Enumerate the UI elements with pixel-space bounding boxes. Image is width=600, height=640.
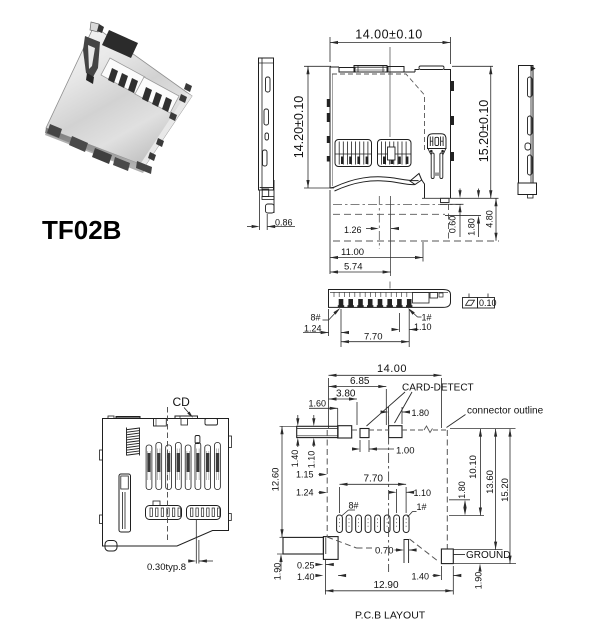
svg-text:TF02B: TF02B: [42, 215, 121, 245]
svg-text:1.10: 1.10: [306, 451, 316, 469]
svg-text:7.70: 7.70: [364, 474, 384, 485]
svg-text:1.00: 1.00: [396, 446, 415, 457]
svg-text:1.10: 1.10: [414, 322, 432, 332]
svg-text:6.85: 6.85: [350, 376, 370, 387]
svg-text:14.20±0.10: 14.20±0.10: [292, 96, 306, 159]
svg-text:0.25: 0.25: [297, 561, 315, 571]
svg-text:3.80: 3.80: [336, 389, 356, 400]
svg-text:14.00: 14.00: [377, 363, 407, 375]
svg-text:10.10: 10.10: [468, 455, 479, 479]
svg-text:8#: 8#: [311, 313, 321, 323]
svg-text:1#: 1#: [417, 502, 427, 512]
svg-text:1.15: 1.15: [296, 470, 314, 480]
svg-text:GROUND: GROUND: [466, 550, 510, 561]
svg-text:1.10: 1.10: [414, 488, 432, 498]
svg-text:8#: 8#: [349, 501, 359, 511]
svg-text:7.70: 7.70: [364, 332, 383, 343]
svg-text:0.86: 0.86: [275, 217, 293, 227]
svg-text:0.70: 0.70: [375, 546, 394, 557]
svg-text:12.90: 12.90: [374, 580, 399, 591]
svg-text:15.20: 15.20: [500, 478, 511, 502]
svg-text:15.20±0.10: 15.20±0.10: [477, 100, 491, 163]
svg-text:connector outline: connector outline: [467, 406, 544, 417]
svg-text:1.40: 1.40: [297, 572, 315, 582]
svg-text:1.80: 1.80: [466, 218, 476, 236]
svg-text:5.74: 5.74: [344, 262, 363, 273]
svg-text:1.24: 1.24: [304, 324, 322, 334]
svg-text:0.30typ.8: 0.30typ.8: [147, 562, 186, 573]
svg-text:1.40: 1.40: [412, 572, 430, 582]
svg-text:1.90: 1.90: [473, 572, 483, 590]
svg-text:1.60: 1.60: [309, 399, 327, 409]
svg-text:1.80: 1.80: [457, 481, 467, 499]
svg-text:1.90: 1.90: [272, 563, 282, 581]
svg-text:P.C.B LAYOUT: P.C.B LAYOUT: [355, 610, 426, 622]
svg-text:4.80: 4.80: [484, 210, 494, 228]
svg-text:1.40: 1.40: [290, 450, 300, 468]
svg-text:CARD-DETECT: CARD-DETECT: [402, 383, 474, 394]
svg-text:13.60: 13.60: [485, 470, 496, 494]
svg-text:1.80: 1.80: [412, 408, 430, 418]
svg-text:11.00: 11.00: [341, 247, 364, 258]
svg-text:0.10: 0.10: [479, 298, 497, 308]
svg-text:CD: CD: [173, 395, 191, 409]
svg-text:1.24: 1.24: [296, 488, 314, 498]
svg-text:0.60: 0.60: [447, 216, 457, 234]
svg-text:1.26: 1.26: [344, 225, 362, 235]
svg-text:12.60: 12.60: [271, 468, 282, 492]
svg-text:1#: 1#: [422, 313, 432, 323]
svg-text:14.00±0.10: 14.00±0.10: [355, 28, 422, 42]
